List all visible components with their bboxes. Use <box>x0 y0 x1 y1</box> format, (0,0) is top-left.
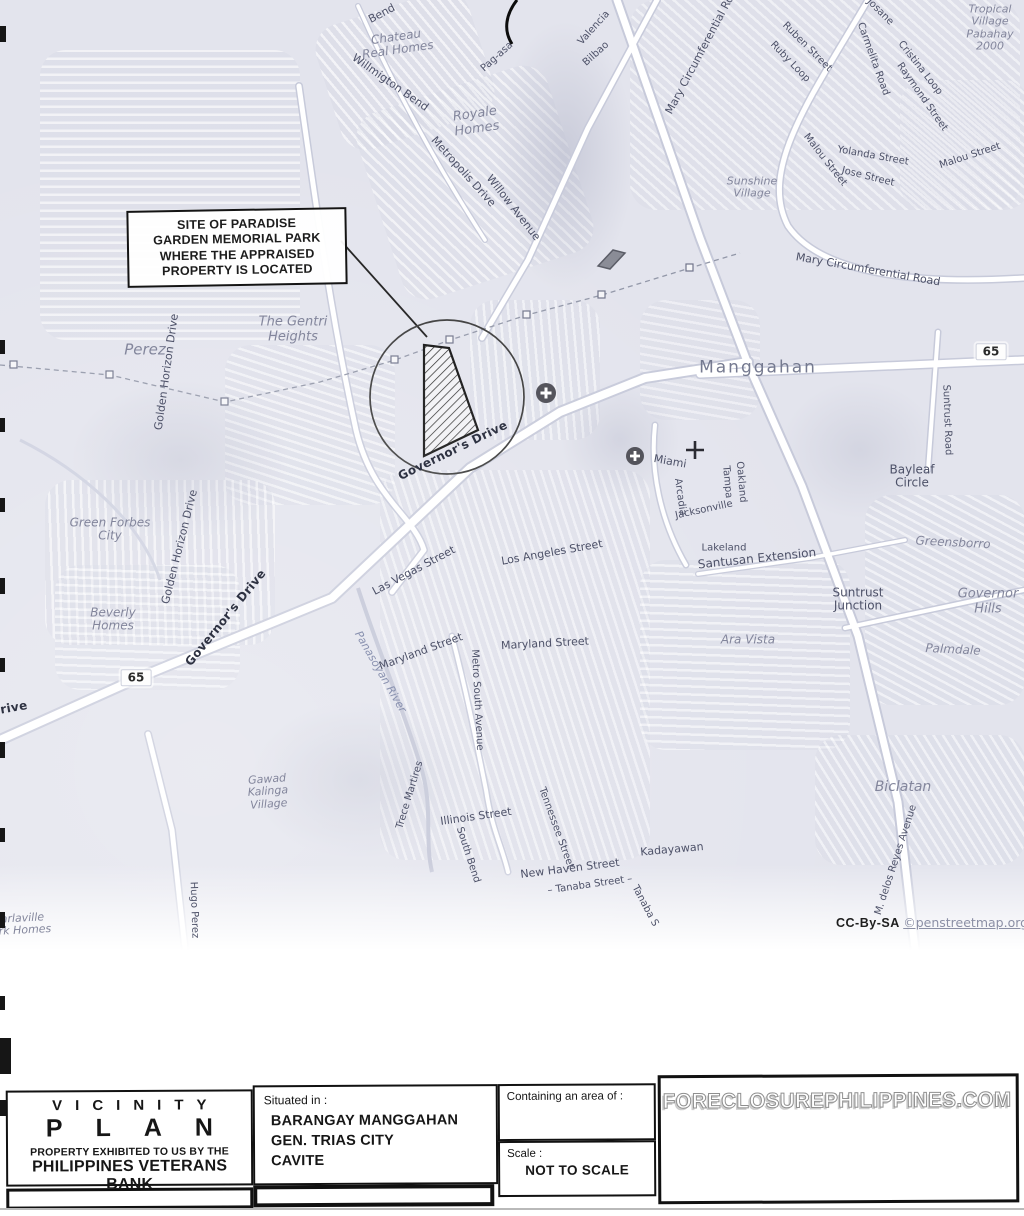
blank-field-box <box>253 1184 494 1207</box>
landmark-parallelogram <box>598 250 625 269</box>
plan-title: PLAN <box>8 1113 251 1143</box>
scale-value: NOT TO SCALE <box>500 1162 654 1178</box>
scan-edge-tick <box>0 26 6 42</box>
hospital-plus-icon <box>626 447 644 465</box>
scan-edge-tick <box>0 578 5 594</box>
plan-title-box: VICINITY PLAN PROPERTY EXHIBITED TO US B… <box>6 1089 253 1186</box>
license-label: CC-By-SA <box>836 916 900 930</box>
map-label: BayleafCircle <box>890 464 935 491</box>
situated-in-label: Situated in : <box>264 1092 496 1107</box>
scanned-vicinity-plan-page: BendPag-asaChateauReal HomesWillmigton B… <box>0 0 1024 1216</box>
situated-line: BARANGAY MANGGAHAN <box>271 1110 496 1131</box>
map-label: Green ForbesCity <box>70 517 151 544</box>
openstreetmap-link[interactable]: ©penstreetmap.org <box>903 915 1024 930</box>
scan-edge-tick <box>0 658 5 672</box>
map-label: TropicalVillagePabahay2000 <box>966 3 1013 52</box>
scale-label: Scale : <box>507 1147 654 1160</box>
scan-edge-tick <box>0 418 5 432</box>
hospital-plus-icon <box>536 383 556 403</box>
map-label: GovernorHills <box>958 587 1019 616</box>
map-label: Palmdale <box>925 642 981 658</box>
map-label: 65 <box>976 343 1007 360</box>
map-label: MarlavillePark Homes <box>0 911 52 939</box>
map-label: Manggahan <box>699 358 817 377</box>
map-label: Perez <box>124 342 166 359</box>
scale-box: Scale : NOT TO SCALE <box>498 1140 656 1197</box>
scan-edge-tick <box>0 828 5 842</box>
map-label: SunshineVillage <box>727 176 777 201</box>
scan-edge-tick <box>0 912 5 928</box>
scan-edge-tick <box>0 1100 6 1116</box>
map-label: RoyaleHomes <box>452 104 501 139</box>
map-label: The GentriHeights <box>259 315 328 344</box>
map-label: GawadKalingaVillage <box>247 772 290 812</box>
cross-marker-icon <box>686 441 704 459</box>
site-callout-box: SITE OF PARADISE GARDEN MEMORIAL PARK WH… <box>126 207 347 288</box>
map-attribution: CC-By-SA ©penstreetmap.org <box>836 915 1024 930</box>
map-label: SuntrustJunction <box>832 587 883 614</box>
scan-bottom-edge <box>0 1208 1024 1210</box>
pen-mark <box>507 0 517 44</box>
scan-edge-tick <box>0 1038 11 1074</box>
area-label: Containing an area of : <box>507 1090 654 1103</box>
vicinity-map: BendPag-asaChateauReal HomesWillmigton B… <box>0 0 1024 960</box>
scan-edge-tick <box>0 340 5 354</box>
situated-line: CAVITE <box>271 1150 496 1171</box>
vicinity-title: VICINITY <box>8 1097 251 1114</box>
situated-line: GEN. TRIAS CITY <box>271 1130 496 1151</box>
scan-edge-tick <box>0 996 5 1010</box>
callout-line: PROPERTY IS LOCATED <box>131 261 343 280</box>
blank-field-box <box>6 1187 253 1209</box>
scan-edge-tick <box>0 498 5 512</box>
scan-edge-tick <box>0 742 5 758</box>
title-block: VICINITY PLAN PROPERTY EXHIBITED TO US B… <box>0 1067 1024 1216</box>
situated-in-box: Situated in : BARANGAY MANGGAHAN GEN. TR… <box>253 1084 499 1185</box>
map-label: Hugo Perez <box>187 882 200 939</box>
map-label: BeverlyHomes <box>90 607 135 634</box>
map-label: 65 <box>121 669 152 686</box>
foreclosurephilippines-watermark: FORECLOSUREPHILIPPINES.COM <box>663 1088 1006 1114</box>
poi-markers <box>536 250 704 465</box>
site-annotation <box>341 241 524 474</box>
area-box: Containing an area of : <box>498 1083 656 1141</box>
map-label: Ara Vista <box>721 633 775 646</box>
map-label: Lakeland <box>702 542 747 553</box>
watermark-box: FORECLOSUREPHILIPPINES.COM <box>658 1073 1020 1204</box>
map-label: Biclatan <box>875 780 932 796</box>
